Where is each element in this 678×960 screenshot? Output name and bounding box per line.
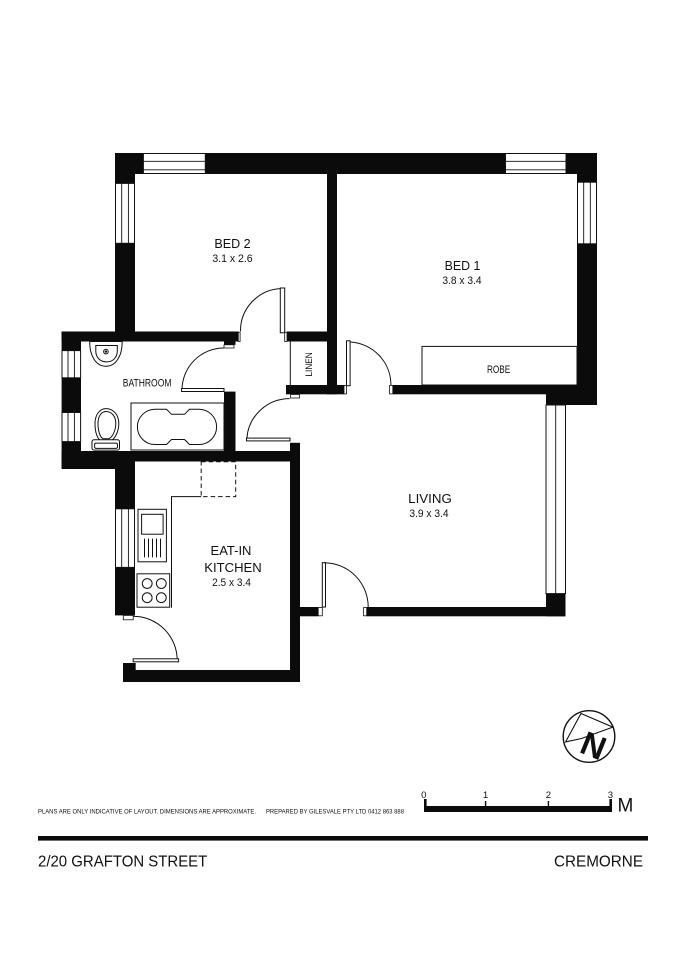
svg-text:2: 2 [546,790,551,801]
svg-text:LIVING: LIVING [408,491,452,506]
svg-text:3: 3 [608,790,613,801]
svg-text:PLANS ARE ONLY INDICATIVE OF L: PLANS ARE ONLY INDICATIVE OF LAYOUT. DIM… [38,809,256,816]
svg-text:0: 0 [421,790,426,801]
svg-text:ROBE: ROBE [487,364,510,376]
svg-text:3.8 x 3.4: 3.8 x 3.4 [442,275,481,287]
svg-text:EAT-IN: EAT-IN [211,543,252,558]
svg-text:PREPARED BY GILESVALE PTY LTD: PREPARED BY GILESVALE PTY LTD 0412 863 8… [266,809,404,816]
svg-text:3.9 x 3.4: 3.9 x 3.4 [409,508,448,520]
svg-text:KITCHEN: KITCHEN [204,560,262,575]
svg-text:2.5 x 3.4: 2.5 x 3.4 [212,577,251,589]
svg-text:2/20 GRAFTON STREET: 2/20 GRAFTON STREET [38,854,208,871]
svg-text:BED 1: BED 1 [445,258,481,273]
svg-text:M: M [618,796,634,817]
svg-text:BATHROOM: BATHROOM [123,378,172,390]
svg-text:BED 2: BED 2 [214,236,250,251]
svg-text:LINEN: LINEN [304,352,315,376]
svg-text:1: 1 [483,790,488,801]
svg-text:3.1 x 2.6: 3.1 x 2.6 [212,253,252,265]
svg-text:CREMORNE: CREMORNE [554,854,643,871]
